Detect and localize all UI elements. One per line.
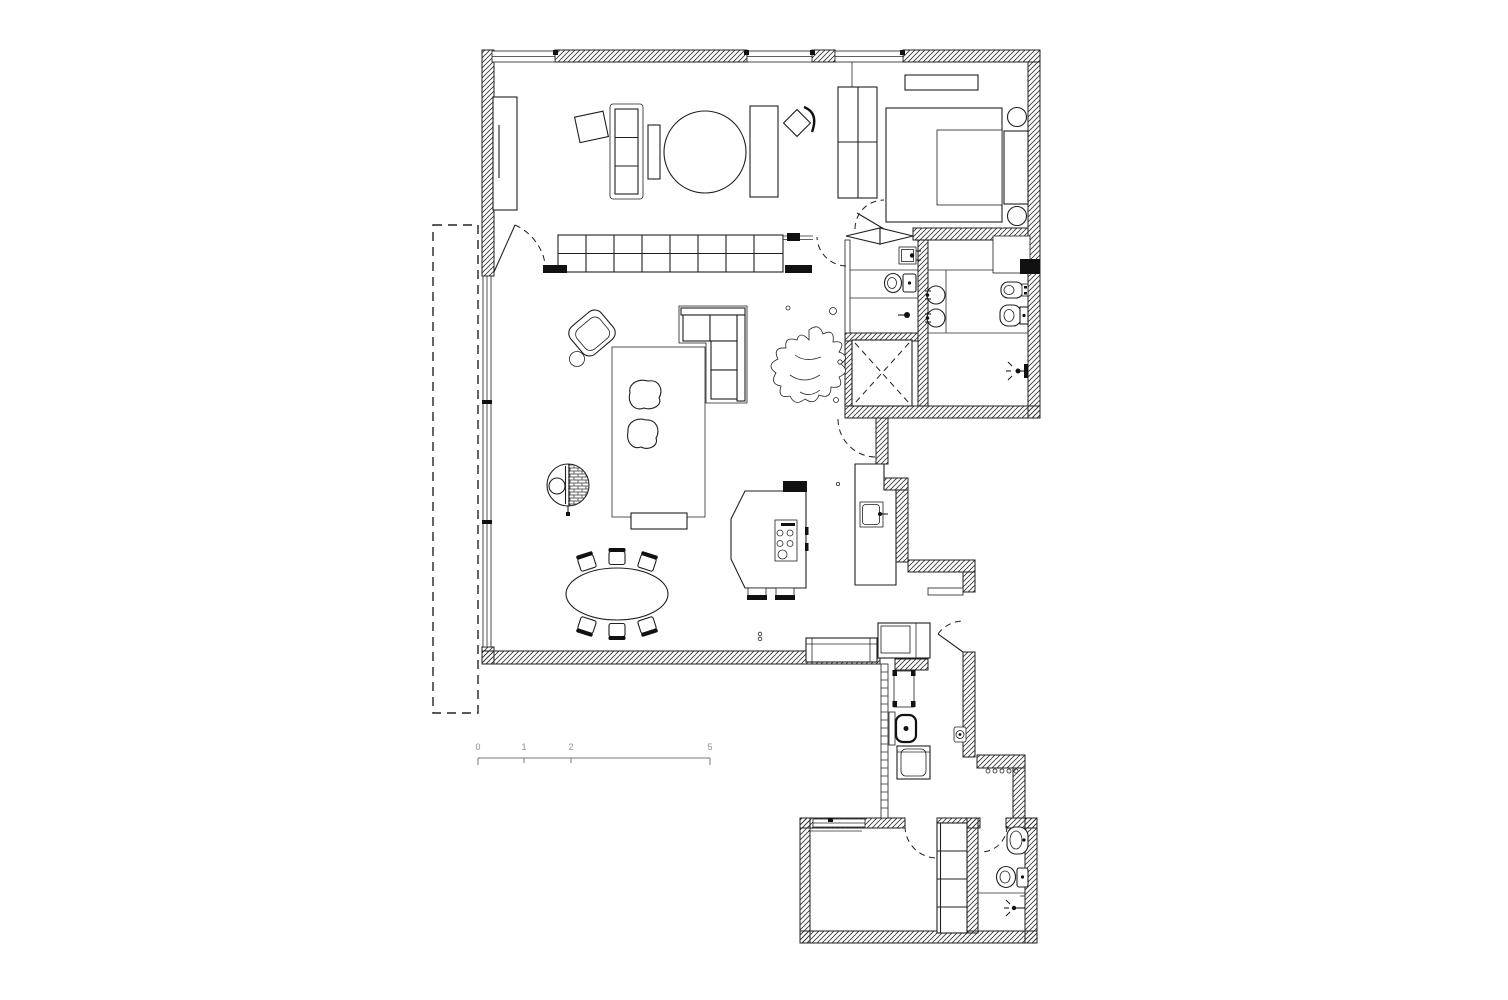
floor-lamp-table [547,464,590,516]
bottom-rooms [937,823,1028,933]
wardrobe [838,62,877,198]
wall-bottom-bottom [800,931,1037,943]
wall-top-1 [555,50,747,62]
wall-bath-middle [918,240,928,406]
entry-cabinet [878,623,930,658]
dining-table [566,568,668,620]
shower-head-right [1006,362,1028,380]
dining-chair [576,616,597,637]
wall-kitchen-2 [884,478,908,490]
bedside-table-bottom [1008,207,1027,226]
dining-chair [609,548,626,565]
toilet-right-bath [1000,305,1028,326]
wall-bath-bottom [845,406,1040,418]
bottom-bath-sink [1007,827,1028,854]
study-bench-left [648,125,660,179]
study-room [493,97,814,210]
balcony-door [494,225,545,272]
washing-machine [897,746,930,779]
dining-area [566,548,668,640]
entry-hall [806,623,930,662]
scale-bar: 0 1 2 5 [475,742,712,765]
bathrooms-upper [850,236,1040,406]
window-junction-tick-1 [553,50,558,55]
divider-cap-left [543,265,567,273]
wall-entry-right-upper [963,572,975,592]
bottom-room-door-arc [905,826,937,858]
pouf-1 [629,380,661,409]
study-cushion [575,111,609,142]
balcony-dashed-outline [433,225,478,713]
kitchen [731,464,896,600]
kitchen-island [731,481,809,600]
scale-label-1: 1 [521,742,526,752]
wall-entry-stub [895,659,928,670]
scale-label-5: 5 [707,742,712,752]
wall-jog-vertical [1013,768,1025,818]
wall-top-3 [903,50,1040,62]
window-bottom-room [808,818,865,831]
study-sofa [610,104,643,199]
island-legs [747,588,795,600]
bedroom [838,62,1028,226]
bottom-bath-door-arc [981,826,1007,852]
bottom-shower-head [1004,900,1025,916]
floor-outlet [758,632,762,641]
bedside-table-top [1008,108,1027,127]
scale-label-2: 2 [568,742,573,752]
wall-shower-left [845,341,852,406]
corridor-slatted-wall [881,664,888,818]
wall-closet-right [967,818,978,933]
double-bed [886,108,1028,226]
cooktop-controls [775,520,797,561]
wall-door-stop [954,727,966,742]
laundry-wc [889,712,916,745]
window-top-1 [492,51,555,62]
window-junction-tick-3 [810,50,815,55]
armchair [565,306,619,359]
window-junction-tick-4 [900,50,905,55]
closet-column [937,823,967,933]
window-top-2 [747,51,812,62]
window-top-3 [835,51,903,62]
dining-chair [637,551,658,572]
wall-bottom-left [800,818,810,943]
scale-label-0: 0 [475,742,480,752]
wall-jog-horizontal [977,755,1025,768]
bedroom-shelf [905,75,978,90]
rug-bench [631,513,687,529]
entry-bench [806,638,877,662]
bedroom-door [855,200,884,229]
entry-door [938,621,963,652]
wall-top-2 [812,50,835,62]
wall-kitchen-3 [896,490,908,562]
floor-plan-canvas: 0 1 2 5 [0,0,1508,1000]
living-pocket-door [817,228,913,266]
dining-chair [609,624,626,641]
shelving-divider [543,233,813,273]
island-sink-black [783,481,807,492]
window-wall-left [482,276,492,647]
wc-tap [898,312,910,318]
wc-toilet [885,274,917,293]
entry-lintel [928,588,963,595]
corner-sofa [679,306,790,403]
dining-chair [576,551,597,572]
divider-cap-right [785,265,812,273]
headboard [1004,131,1028,204]
shower-left [852,340,912,406]
partition-wc-left [845,240,850,333]
laundry-corridor [881,664,1018,818]
plant [771,308,846,403]
window-junction-tick-2 [744,50,749,55]
laundry-stool [893,670,916,707]
pouf-2 [628,419,658,448]
dining-chair [637,616,658,637]
bidet [1001,282,1028,298]
wall-left-top [482,50,494,276]
study-chair [784,107,815,136]
armchair-side-table [570,352,585,367]
wall-entry-top [908,560,975,572]
wall-kitchen-1 [876,418,888,464]
divider-rail [783,233,813,241]
bottom-bath-toilet [997,867,1029,888]
duvet [937,130,1002,205]
study-console-right [750,106,778,197]
study-round-table [664,111,746,193]
tv-cabinet [493,97,517,210]
